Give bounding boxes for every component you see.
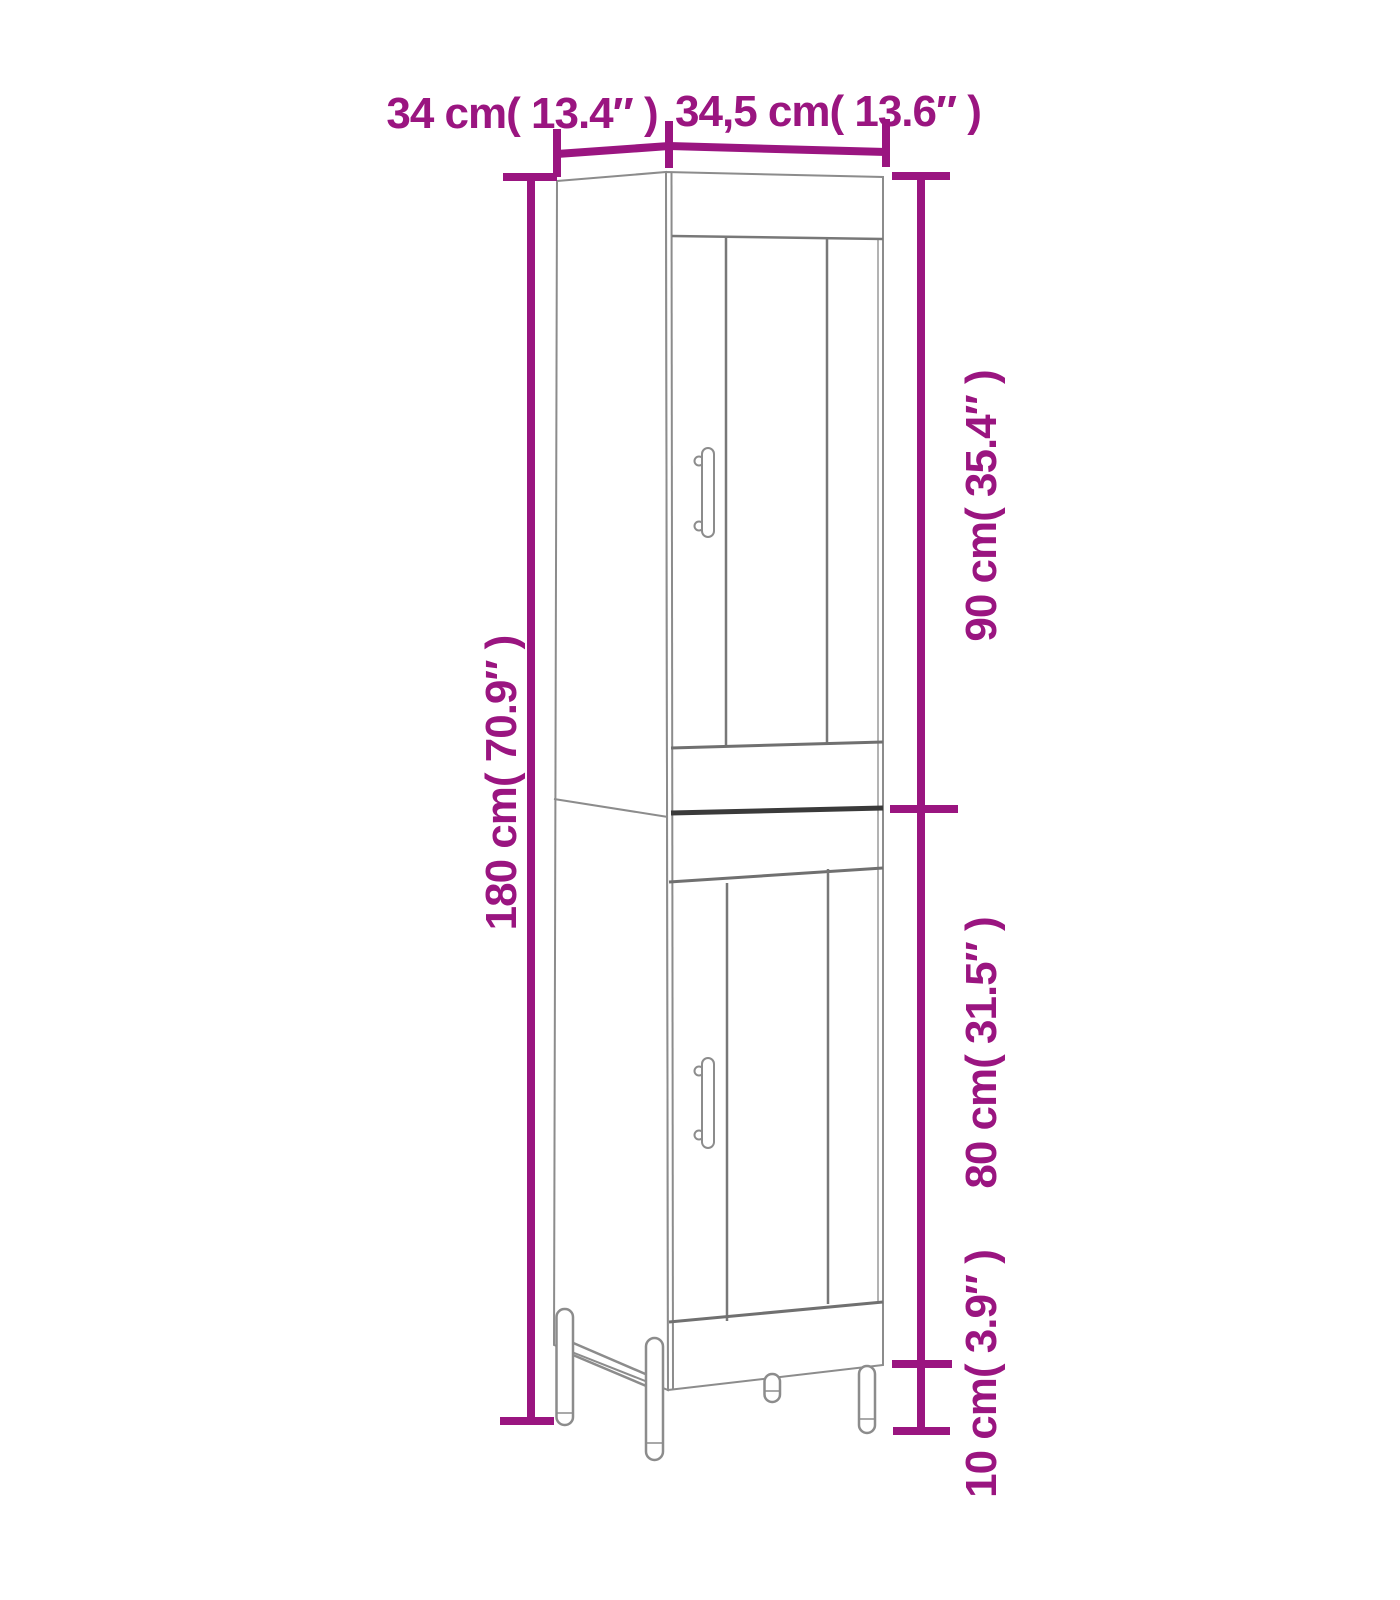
handle-bar-icon xyxy=(702,448,714,537)
leg-front-right xyxy=(859,1366,875,1433)
label-width: 34,5 cm( 13.6″ ) xyxy=(675,87,981,136)
dimension-line-section-heights xyxy=(890,176,958,1431)
cabinet-side-panel xyxy=(554,172,668,1390)
cabinet-front-face xyxy=(666,172,883,1390)
label-lower-section-height: 80 cm( 31.5″ ) xyxy=(957,917,1006,1188)
product-dimension-diagram: 34 cm( 13.4″ ) 34,5 cm( 13.6″ ) 180 cm( … xyxy=(0,0,1400,1600)
leg-middle xyxy=(765,1374,781,1402)
label-total-height: 180 cm( 70.9″ ) xyxy=(477,636,526,931)
handle-bar-icon xyxy=(702,1058,714,1148)
leg-back-left xyxy=(557,1309,574,1425)
leg-front-left xyxy=(646,1338,663,1460)
label-depth: 34 cm( 13.4″ ) xyxy=(386,89,657,138)
diagram-canvas: 34 cm( 13.4″ ) 34,5 cm( 13.6″ ) 180 cm( … xyxy=(0,0,1400,1600)
label-upper-section-height: 90 cm( 35.4″ ) xyxy=(957,370,1006,641)
label-leg-height: 10 cm( 3.9″ ) xyxy=(957,1250,1006,1498)
cabinet-drawing xyxy=(554,172,883,1460)
dim-top-line xyxy=(557,146,886,154)
